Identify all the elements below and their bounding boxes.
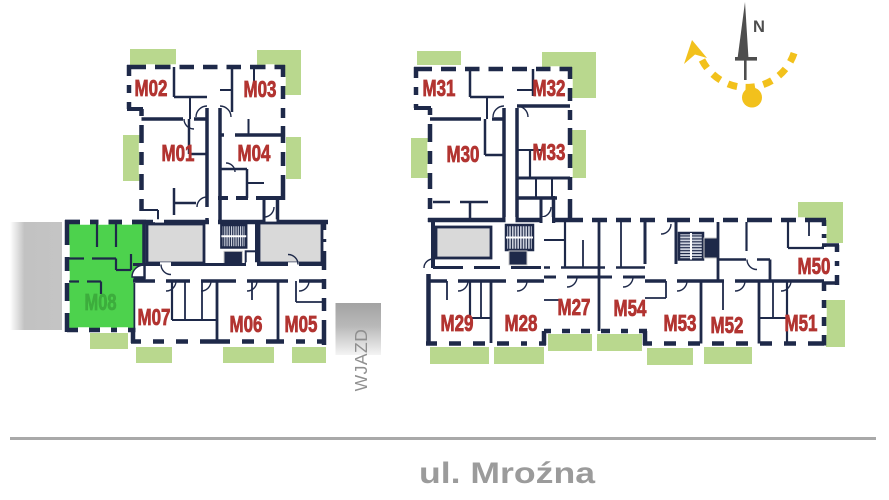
svg-text:M32: M32: [533, 75, 566, 101]
svg-text:WJAZD: WJAZD: [351, 329, 371, 392]
svg-text:M04: M04: [238, 140, 271, 166]
svg-text:M51: M51: [785, 310, 818, 336]
svg-text:M28: M28: [505, 310, 538, 336]
svg-text:M52: M52: [711, 312, 744, 338]
svg-text:M54: M54: [614, 295, 647, 321]
svg-text:M01: M01: [162, 140, 195, 166]
svg-text:M50: M50: [798, 253, 831, 279]
svg-text:M29: M29: [441, 310, 474, 336]
svg-text:M06: M06: [230, 311, 263, 337]
svg-text:M27: M27: [558, 294, 591, 320]
svg-text:M07: M07: [138, 304, 171, 330]
svg-text:M53: M53: [664, 310, 697, 336]
svg-text:ul. Mroźna: ul. Mroźna: [419, 457, 595, 490]
svg-text:M05: M05: [285, 311, 318, 337]
svg-text:M31: M31: [423, 75, 456, 101]
svg-text:M30: M30: [447, 141, 480, 167]
svg-text:M03: M03: [244, 76, 277, 102]
svg-text:M33: M33: [533, 139, 566, 165]
svg-text:N: N: [753, 18, 765, 36]
svg-text:M02: M02: [135, 75, 168, 101]
svg-text:M08: M08: [85, 289, 117, 315]
